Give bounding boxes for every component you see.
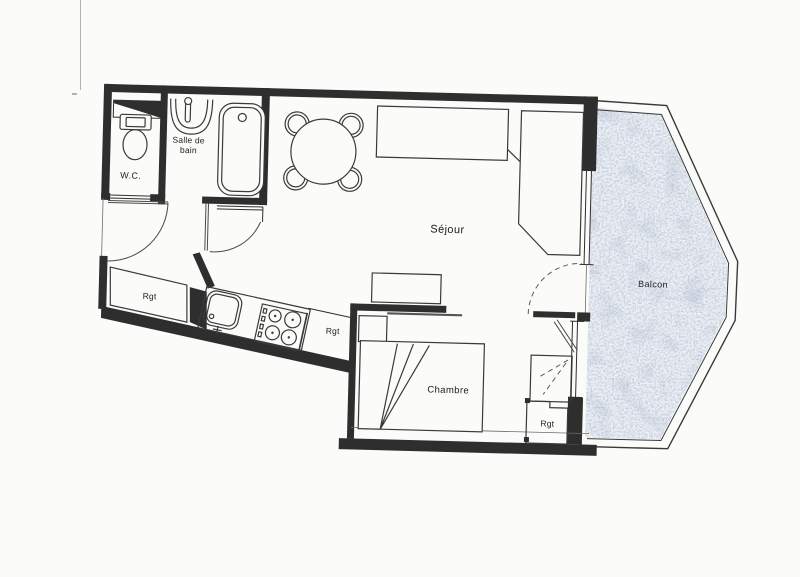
bathroom-room: Salle de bain (168, 97, 265, 196)
window-bedroom (568, 321, 584, 397)
wall-balcony-door-block (577, 312, 590, 321)
room-label-bathroom-2: bain (180, 145, 197, 155)
wall-balcony-door-bar (533, 311, 575, 318)
dining-table (290, 118, 357, 185)
pivot-marker (524, 437, 529, 442)
toilet-fixture (119, 114, 151, 160)
scan-artifacts (72, 0, 81, 94)
balcony-door-track (585, 265, 586, 313)
hall-partition-lines (217, 206, 263, 222)
wardrobe-door-lines (538, 359, 568, 395)
wall-wc-bottom-right (150, 194, 165, 201)
bathroom-door (205, 204, 261, 254)
room-label-bedroom: Chambre (427, 384, 469, 396)
room-label-wc: W.C. (120, 170, 141, 181)
storage-kitchen-right-line (308, 308, 350, 317)
shelf-line (387, 313, 462, 315)
wall-bedroom-bottom (339, 438, 597, 456)
floor-plan: Balcon (0, 0, 800, 577)
bathtub-fixture (217, 103, 265, 196)
cabinet-unit (518, 111, 584, 256)
dining-set (283, 112, 363, 192)
nightstand (358, 316, 387, 343)
wall-left-upper (101, 84, 112, 198)
wall-living-bedroom (350, 303, 446, 313)
sofa (376, 106, 508, 160)
wc-room: W.C. (112, 100, 163, 181)
wall-wc-bottom-left (101, 193, 110, 200)
room-label-storage-kitchen-right: Rgt (326, 326, 341, 336)
room-label-balcony: Balcon (638, 279, 668, 290)
plan: Balcon (95, 80, 770, 467)
sofa-corner-line (507, 149, 520, 161)
living-room: Séjour (280, 104, 583, 319)
wc-door (110, 195, 150, 199)
wall-bedroom-right-lower (567, 397, 583, 444)
room-label-bathroom-1: Salle de (172, 135, 205, 146)
wall-kitchen-slanted (100, 306, 355, 374)
wall-living-right-upper (582, 96, 598, 170)
wall-top (106, 84, 598, 105)
wall-left-lower (98, 256, 107, 309)
wall-hall-kitchen (192, 252, 216, 289)
bedroom-door-panel (553, 320, 578, 353)
balcony-door-swing (528, 262, 581, 315)
bedroom: Rgt Chambre (356, 316, 573, 445)
room-label-living: Séjour (430, 223, 465, 236)
room-label-storage-bedroom: Rgt (540, 418, 555, 428)
wardrobe (530, 355, 572, 402)
washbasin-fixture (170, 97, 213, 135)
entrance-door (106, 200, 168, 262)
room-label-storage-kitchen-left: Rgt (143, 291, 158, 301)
wall-bathroom-bottom (202, 196, 267, 205)
scanned-floor-plan-page: Balcon (0, 0, 800, 577)
pivot-marker (525, 398, 530, 403)
desk (371, 273, 441, 304)
entrance-opening-line (102, 198, 104, 256)
